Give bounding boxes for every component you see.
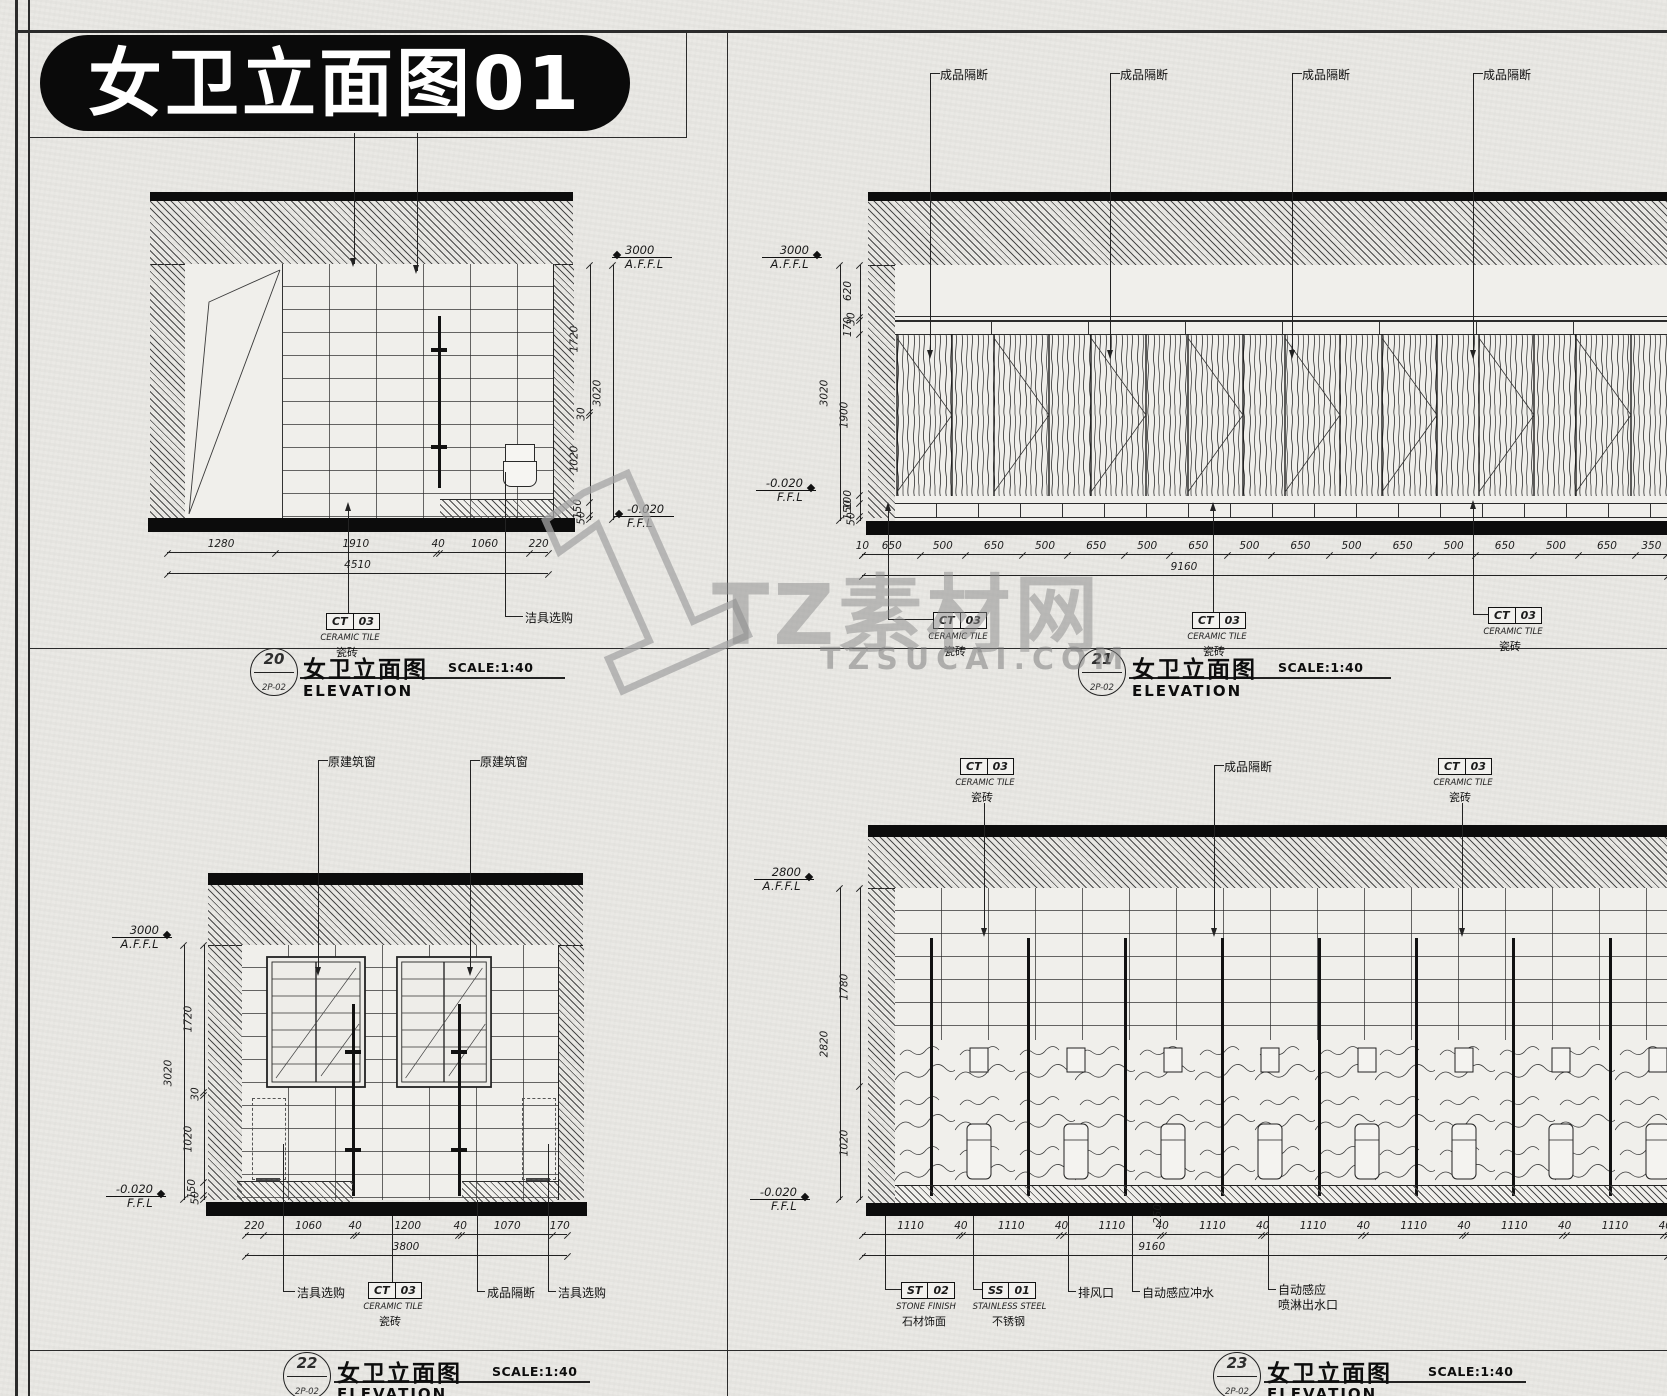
partition-doors [895,334,1667,496]
leader-elbow [477,1291,485,1292]
dim-total-bottom: 9160 [862,560,1667,576]
window-label: 原建筑窗 [480,753,528,770]
fixture-label: 洁具选购 [525,609,573,626]
partition-line [352,1004,355,1196]
leader-line [470,760,471,972]
leader-elbow [1268,1289,1276,1290]
sheet-border-left-inner [28,0,30,1396]
leader-line [1292,73,1293,355]
leader-line [417,133,418,271]
tag-caption-en: CERAMIC TILE [1413,778,1513,788]
tile-skirting [895,503,1667,518]
view-number-bubble: 232P-02 [1213,1352,1261,1396]
tag-leader [984,803,985,933]
leader-elbow [1292,73,1302,74]
tag-caption-cn: 不锈钢 [992,1313,1025,1329]
ceiling-hatch [208,885,583,946]
exhaust-label: 排风口 [1078,1284,1114,1301]
dim-chain-bottom: 2201060401200401070170 [245,1220,567,1235]
stall-marble-and-fixtures [895,1040,1667,1185]
partition-bracket [345,1050,361,1054]
material-tag-ct03: CT03 [1192,612,1246,629]
ceiling-band [208,873,583,885]
dim-chain-side: 172030102015050 [190,945,205,1200]
ceiling-hatch [868,837,1667,889]
view-scale: SCALE:1:40 [1278,660,1363,675]
sheet-border-top [15,30,1667,33]
titleblock-divider-h [29,137,687,138]
ceiling-hatch [150,201,573,265]
view-subtitle: ELEVATION [1267,1385,1377,1396]
leader-elbow [930,73,940,74]
ceiling-band [868,825,1667,837]
auto-spray-label-line2: 喷淋出水口 [1278,1296,1338,1313]
toilet-outline [252,1098,286,1180]
dim-total-side: 2820 [826,888,841,1200]
tag-caption-en: CERAMIC TILE [1463,627,1563,637]
titleblock-divider-v [686,32,687,137]
tag-caption-cn: 石材饰面 [902,1313,946,1329]
floor-band [206,1202,587,1216]
tag-caption-cn: 瓷砖 [379,1313,401,1329]
view-title: 女卫立面图 [303,650,428,684]
leader-line [318,760,319,972]
wall-hatch-left [868,888,896,1203]
partition-label: 成品隔断 [940,66,988,83]
leader-line [354,133,355,264]
plinth-hatch-right [462,1182,558,1202]
sheet-title: 女卫立面图01 [40,35,630,131]
wall-hatch-left [208,945,243,1200]
tile-grid [895,888,1667,1040]
leader-elbow [470,760,480,761]
leader-elbow [1068,1291,1076,1292]
leader-elbow [1214,765,1224,766]
view-scale: SCALE:1:40 [1428,1364,1513,1379]
leader-elbow [973,1289,982,1290]
toilet-outline [522,1098,556,1180]
partition-bracket [451,1050,467,1054]
leader-arrow-icon [1289,350,1295,359]
bottom-rule [29,1350,1667,1351]
partition-line [1415,938,1418,1196]
auto-flush-label: 自动感应冲水 [1142,1284,1214,1301]
tag-caption-en: CERAMIC TILE [935,778,1035,788]
wall-hatch-left [868,265,896,518]
leader-elbow [283,1291,295,1292]
ceiling-hatch [868,201,1667,266]
leader-arrow-icon [315,967,321,976]
view-scale: SCALE:1:40 [492,1364,577,1379]
wall-hatch-right [553,264,574,518]
partition-line [930,938,933,1196]
material-tag-ct03: CT03 [933,612,987,629]
dim-total-bottom: 3800 [245,1240,567,1256]
tag-leader [1462,803,1463,933]
leader-elbow [1132,1291,1140,1292]
window-label: 原建筑窗 [328,753,376,770]
tag-leader-elbow [1473,614,1488,615]
level-mark-ffl: -0.020 F.F.L [106,1183,166,1210]
view-number-bubble: 212P-02 [1078,648,1126,696]
level-mark-affl: 3000 A.F.F.L [762,244,822,271]
ceiling-band [868,192,1667,201]
partition-label: 成品隔断 [1483,66,1531,83]
level-mark-ffl: -0.020 F.F.L [750,1186,810,1213]
tag-caption-cn: 瓷砖 [971,789,993,805]
tag-caption-cn: 瓷砖 [944,643,966,659]
tag-leader-elbow [888,619,933,620]
center-divider-v [727,32,728,1396]
partition-line [1027,938,1030,1196]
leader-arrow-icon [1211,928,1217,937]
view-title: 女卫立面图 [337,1354,462,1388]
wall-hatch-right [558,945,584,1200]
tag-caption-en: CERAMIC TILE [300,633,400,643]
level-mark-ffl: -0.020 F.F.L [756,477,816,504]
leader-line [1110,73,1111,355]
partition-bracket [431,445,447,449]
tag-caption-cn: 瓷砖 [1203,643,1225,659]
view-subtitle: ELEVATION [303,682,413,700]
partition-line [1512,938,1515,1196]
leader-arrow-icon [1459,928,1465,937]
level-mark-affl: 3000 A.F.F.L [612,244,672,271]
partition-head-rail [895,321,1667,335]
leader-arrow-icon [1107,350,1113,359]
toilet-tank [505,444,535,462]
view-title: 女卫立面图 [1267,1354,1392,1388]
floor-band [866,521,1667,535]
plinth-hatch-left [237,1182,353,1202]
material-tag-ss01: SS01 [982,1282,1036,1299]
partition-bracket [431,348,447,352]
material-tag-ct03: CT03 [960,758,1014,775]
floor-band [866,1203,1667,1216]
leader-elbow [548,1291,556,1292]
partition-bracket [451,1148,467,1152]
level-mark-affl: 3000 A.F.F.L [112,924,172,951]
dim-total-side: 3020 [170,945,185,1200]
dim-total-bottom: 4510 [167,558,548,574]
leader-arrow-icon [885,502,891,511]
view-scale: SCALE:1:40 [448,660,533,675]
leader-line [930,73,931,355]
dim-chain-bottom: 1110401110401110401110401110401110401110… [862,1220,1667,1235]
tag-caption-en: CERAMIC TILE [908,632,1008,642]
tag-caption-cn: 瓷砖 [336,644,358,660]
bulkhead-line [895,316,1667,317]
leader-arrow-icon [350,258,356,267]
partition-line [438,316,441,488]
view-number-bubble: 202P-02 [250,648,298,696]
tag-caption-en: CERAMIC TILE [343,1302,443,1312]
dim-chain-bottom: 1065050065050065050065050065050065050065… [862,540,1667,555]
dim-chain-bottom: 12801910401060220 [167,538,548,553]
partition-line [458,1004,461,1196]
plinth-hatch [895,1185,1667,1204]
dim-total-bottom: 9160 [862,1240,1667,1256]
leader-elbow [885,1289,901,1290]
toilet-bowl [503,461,537,487]
material-tag-ct03: CT03 [1488,607,1542,624]
partition-line [1221,938,1224,1196]
view-subtitle: ELEVATION [1132,682,1242,700]
fixture-label: 洁具选购 [558,1284,606,1301]
fixture-leader [283,1144,284,1292]
dim-chain-side: 62030170190010015050 [846,265,861,521]
leader-arrow-icon [345,502,351,511]
dim-total-side: 3020 [599,265,614,520]
partition-label: 成品隔断 [1224,758,1272,775]
floor-band [148,518,575,532]
sheet-border-left-outer [15,0,18,1396]
leader-arrow-icon [981,928,987,937]
drawing-sheet: 女卫立面图01 172030102015050 3020 3000 A.F.F.… [0,0,1667,1396]
dim-chain-side: 172030102015050 [576,265,591,520]
dim-chain-side: 17801020 [846,888,861,1200]
tag-caption-cn: 瓷砖 [1499,638,1521,654]
leader-line [1214,765,1215,933]
leader-arrow-icon [413,265,419,274]
fixture-label: 洁具选购 [297,1284,345,1301]
partition-line [1124,938,1127,1196]
leader-arrow-icon [927,350,933,359]
door-swing-lines [185,264,282,518]
fixture-leader [548,1144,549,1292]
riser-dim: 250 [1152,1204,1164,1224]
tag-caption-cn: 瓷砖 [1449,789,1471,805]
leader-line [1473,73,1474,355]
window-2 [396,956,492,1088]
leader-arrow-icon [1470,350,1476,359]
ceiling-band [150,192,573,201]
material-tag-ct03: CT03 [326,613,380,630]
counter-hatch [440,500,553,518]
view-number-bubble: 222P-02 [283,1352,331,1396]
leader-elbow [1110,73,1120,74]
tag-caption-en: STAINLESS STEEL [957,1302,1062,1312]
level-mark-affl: 2800 A.F.F.L [754,866,814,893]
tag-caption-en: CERAMIC TILE [1167,632,1267,642]
partition-line [1318,938,1321,1196]
wall-hatch-left [150,264,186,518]
leader-arrow-icon [467,967,473,976]
view-title: 女卫立面图 [1132,650,1257,684]
partition-label: 成品隔断 [1302,66,1350,83]
view-subtitle: ELEVATION [337,1385,447,1396]
level-mark-ffl: -0.020 F.F.L [614,503,674,530]
partition-line [1609,938,1612,1196]
material-tag-st02: ST02 [901,1282,955,1299]
leader-arrow-icon [1470,500,1476,509]
leader-elbow [1473,73,1483,74]
material-tag-ct03: CT03 [368,1282,422,1299]
fixture-leader-elbow [505,616,523,617]
dim-total-side: 3020 [826,265,841,521]
partition-bracket [345,1148,361,1152]
partition-label: 成品隔断 [487,1284,535,1301]
material-tag-ct03: CT03 [1438,758,1492,775]
leader-elbow [318,760,328,761]
partition-label: 成品隔断 [1120,66,1168,83]
leader-arrow-icon [1210,502,1216,511]
